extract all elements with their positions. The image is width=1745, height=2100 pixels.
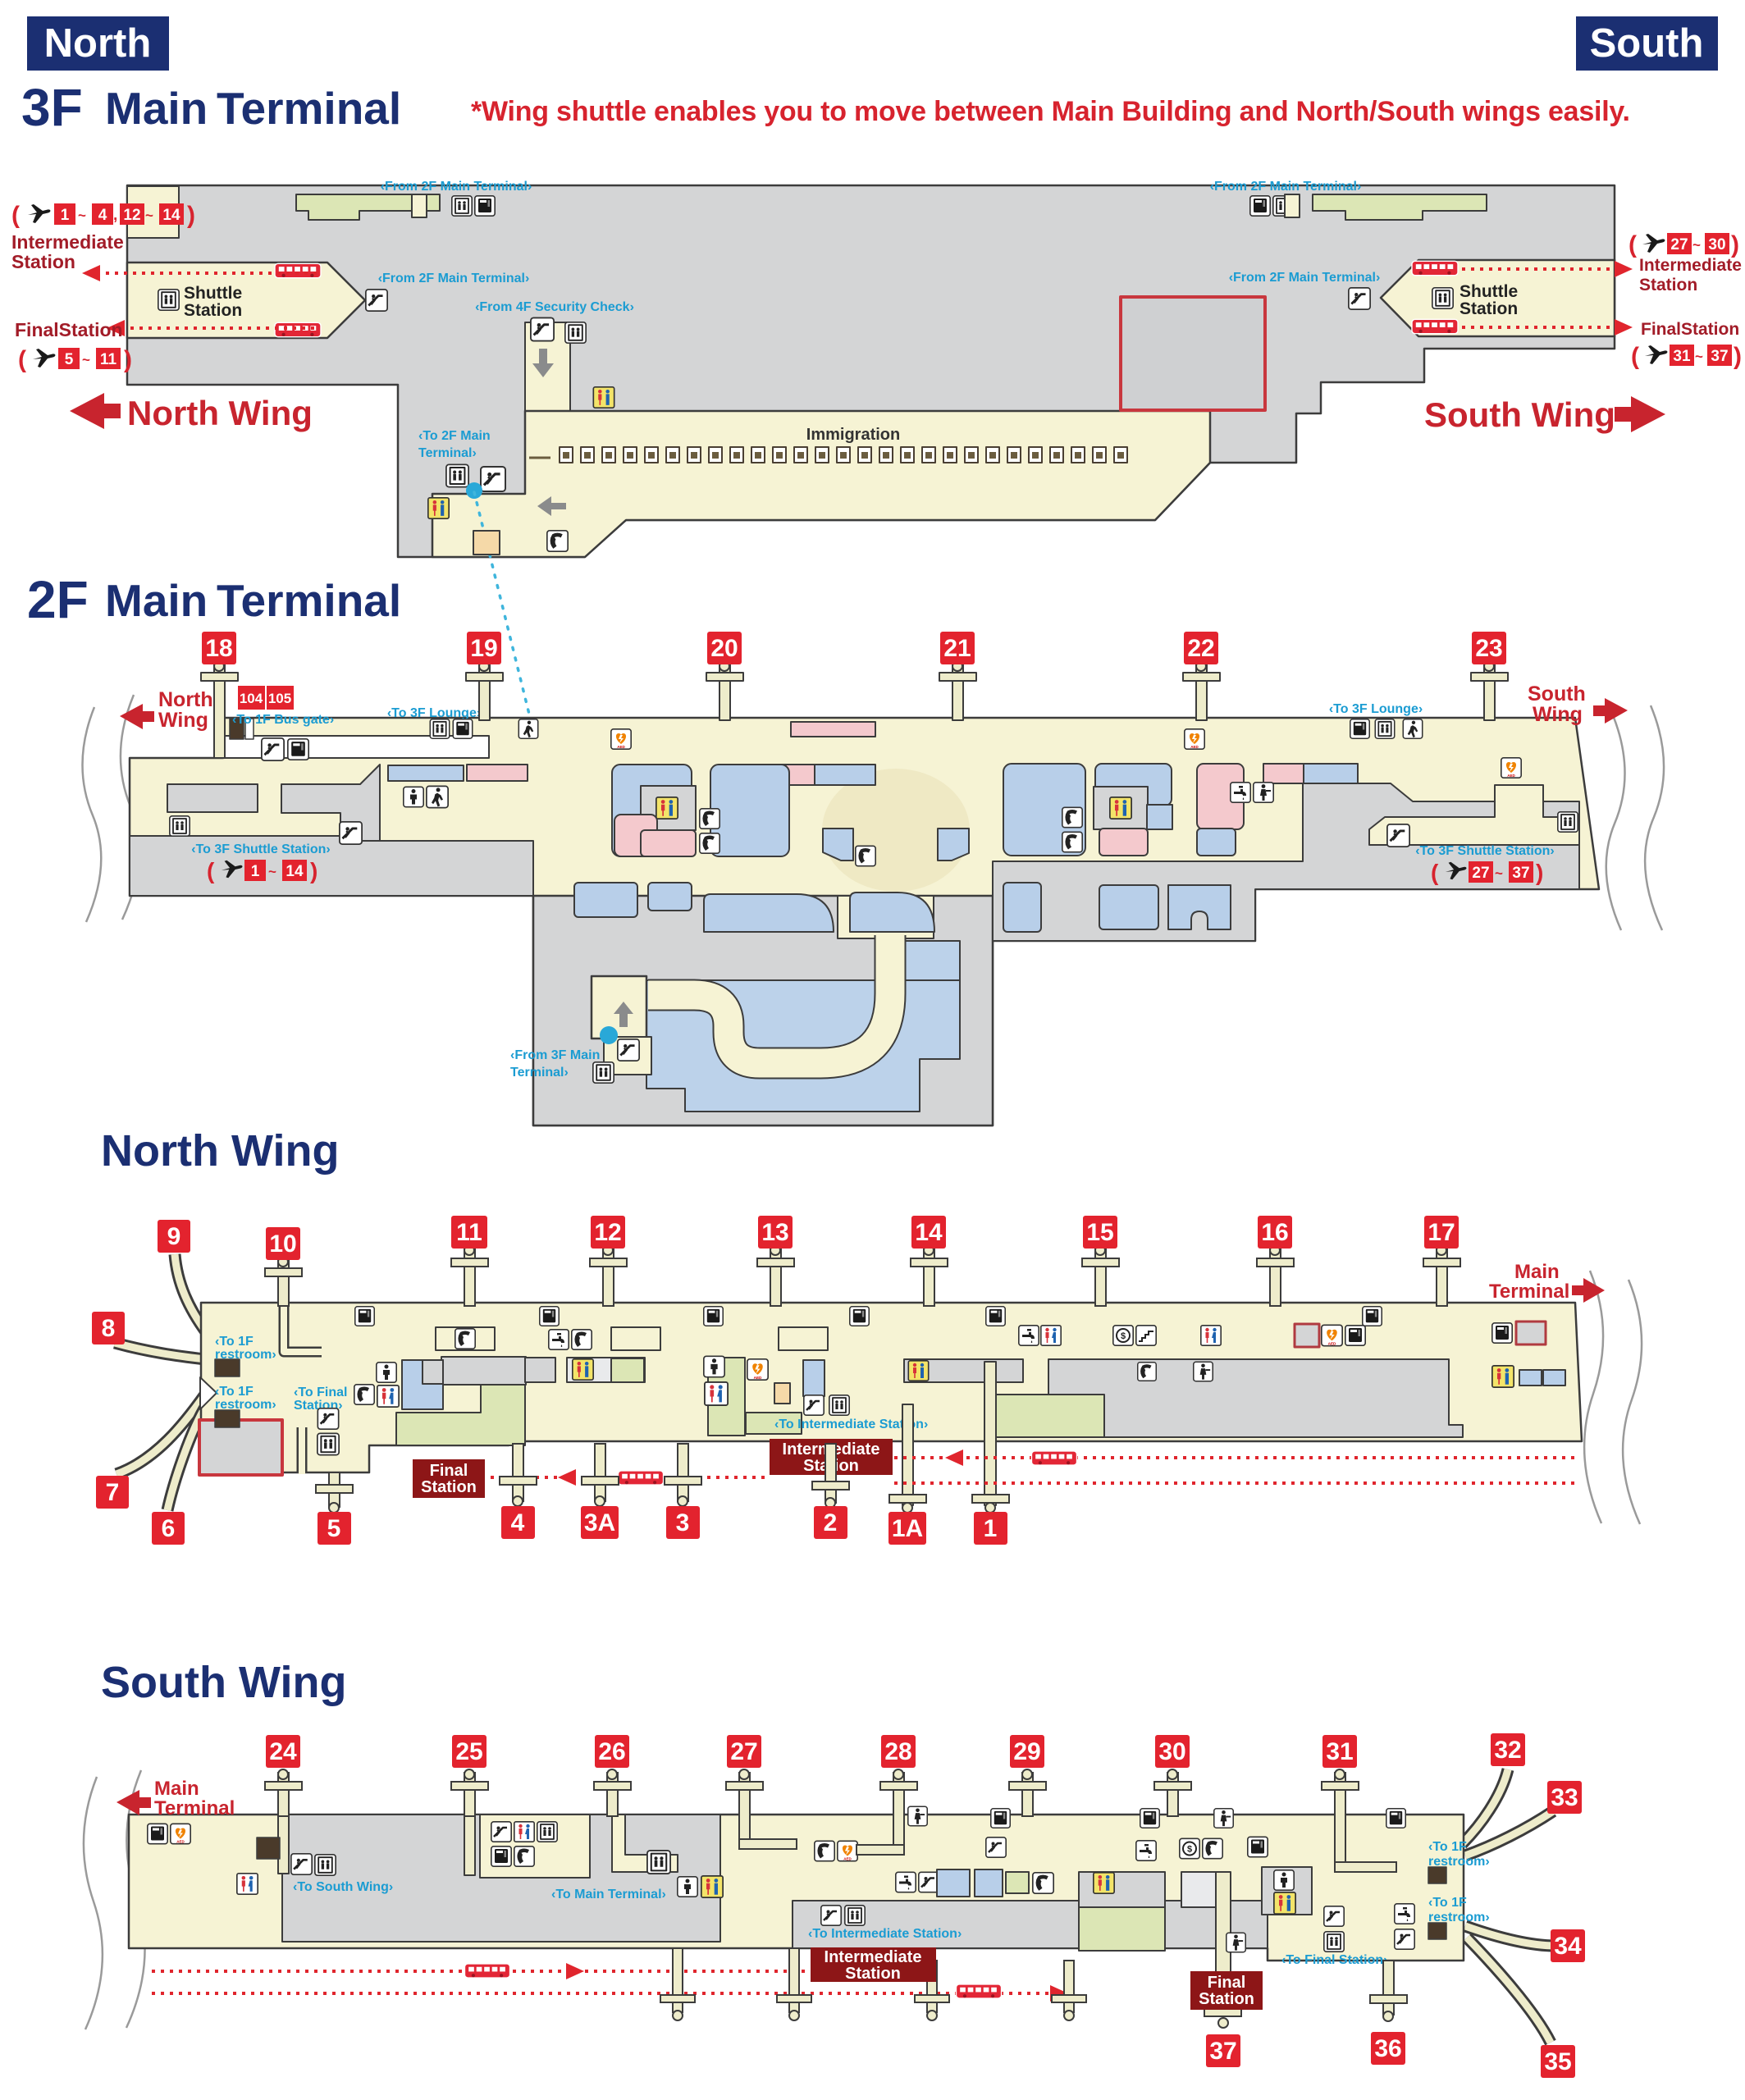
svg-text:North Wing: North Wing (101, 1126, 339, 1176)
svg-text:10: 10 (269, 1230, 296, 1258)
svg-text:105: 105 (268, 691, 291, 706)
svg-text:Final: Final (1208, 1974, 1246, 1992)
svg-text:~: ~ (1495, 865, 1503, 881)
svg-text:17: 17 (1428, 1219, 1455, 1246)
svg-text:(: ( (11, 202, 20, 229)
svg-text:(: ( (207, 858, 215, 883)
svg-text:21: 21 (943, 635, 971, 662)
svg-text:‹To Final: ‹To Final (294, 1386, 347, 1399)
svg-text:3F: 3F (21, 78, 83, 137)
svg-text:‹To 3F Lounge›: ‹To 3F Lounge› (1329, 702, 1423, 716)
svg-text:5: 5 (65, 351, 74, 368)
svg-text:3A: 3A (584, 1509, 615, 1536)
svg-text:(: ( (1631, 343, 1639, 370)
svg-text:Station: Station (1199, 1990, 1254, 2008)
svg-text:31: 31 (1326, 1738, 1353, 1765)
svg-text:): ) (124, 346, 132, 373)
svg-text:37: 37 (1209, 2038, 1236, 2065)
svg-text:(: ( (18, 346, 26, 373)
svg-text:2F: 2F (27, 570, 89, 629)
svg-text:): ) (1731, 231, 1739, 258)
svg-text:Station: Station (11, 251, 75, 272)
svg-text:Station: Station (1639, 276, 1697, 294)
svg-text:Shuttle: Shuttle (1459, 282, 1518, 301)
svg-text:25: 25 (455, 1738, 482, 1765)
svg-text:Terminal›: Terminal› (418, 446, 477, 460)
svg-text:32: 32 (1494, 1737, 1521, 1764)
svg-text:North: North (44, 21, 152, 66)
svg-text:9: 9 (167, 1223, 181, 1250)
svg-text:‹To 1F: ‹To 1F (1428, 1840, 1467, 1854)
svg-text:‹To Main Terminal›: ‹To Main Terminal› (551, 1888, 666, 1901)
svg-text:‹From 2F Main Terminal›: ‹From 2F Main Terminal› (1229, 271, 1381, 285)
svg-text:‹From 2F Main Terminal›: ‹From 2F Main Terminal› (378, 272, 530, 285)
svg-text:23: 23 (1475, 635, 1502, 662)
svg-text:34: 34 (1554, 1933, 1582, 1960)
svg-text:‹To Final Station›: ‹To Final Station› (1281, 1953, 1387, 1967)
svg-text:14: 14 (162, 207, 180, 224)
svg-text:‹To 1F: ‹To 1F (215, 1385, 254, 1399)
svg-text:27: 27 (730, 1738, 757, 1765)
svg-text:Station: Station (845, 1965, 901, 1983)
svg-text:(: ( (1431, 860, 1439, 885)
svg-text:): ) (310, 858, 317, 883)
svg-text:Terminal›: Terminal› (510, 1066, 569, 1080)
svg-text:Main: Main (105, 575, 208, 626)
svg-text:restroom›: restroom› (1428, 1911, 1490, 1924)
svg-text:37: 37 (1512, 865, 1529, 882)
svg-text:104: 104 (240, 691, 263, 706)
svg-text:14: 14 (915, 1219, 943, 1246)
svg-text:6: 6 (162, 1515, 176, 1542)
svg-text:30: 30 (1708, 236, 1725, 253)
svg-text:12: 12 (123, 207, 140, 224)
svg-text:13: 13 (761, 1219, 788, 1246)
svg-text:‹To 1F: ‹To 1F (1428, 1896, 1467, 1910)
svg-text:South Wing: South Wing (101, 1658, 346, 1707)
svg-text:~: ~ (145, 208, 153, 223)
svg-text:8: 8 (102, 1315, 116, 1342)
svg-text:Station: Station (1459, 299, 1518, 318)
svg-text:Terminal: Terminal (1489, 1281, 1569, 1303)
svg-text:Main: Main (154, 1778, 199, 1800)
svg-text:5: 5 (327, 1515, 341, 1542)
svg-text:South Wing: South Wing (1424, 395, 1615, 434)
svg-text:Terminal: Terminal (154, 1797, 235, 1819)
svg-text:1: 1 (984, 1515, 998, 1542)
svg-text:16: 16 (1261, 1219, 1288, 1246)
svg-text:Main: Main (1514, 1261, 1560, 1283)
svg-text:‹To 3F Shuttle Station›: ‹To 3F Shuttle Station› (191, 842, 330, 856)
svg-text:‹From 2F Main Terminal›: ‹From 2F Main Terminal› (1210, 180, 1362, 194)
svg-text:24: 24 (269, 1738, 297, 1765)
svg-text:Terminal: Terminal (217, 575, 401, 626)
svg-text:~: ~ (78, 208, 86, 223)
svg-text:~: ~ (1692, 237, 1701, 253)
svg-text:): ) (1536, 860, 1543, 885)
svg-text:14: 14 (286, 863, 304, 880)
svg-text:35: 35 (1544, 2048, 1571, 2075)
svg-text:11: 11 (100, 351, 117, 368)
svg-text:FinalStation: FinalStation (15, 319, 123, 340)
svg-text:,: , (113, 207, 117, 224)
svg-text:12: 12 (594, 1219, 621, 1246)
svg-text:South: South (1528, 682, 1586, 705)
svg-text:‹From 2F Main Terminal›: ‹From 2F Main Terminal› (381, 180, 532, 194)
svg-text:‹From 4F Security Check›: ‹From 4F Security Check› (475, 300, 634, 314)
svg-text:22: 22 (1187, 635, 1214, 662)
svg-text:37: 37 (1711, 348, 1728, 365)
svg-text:11: 11 (456, 1219, 482, 1246)
svg-text:26: 26 (598, 1738, 625, 1765)
svg-text:20: 20 (710, 635, 738, 662)
svg-text:‹To South Wing›: ‹To South Wing› (293, 1880, 393, 1894)
svg-text:Station: Station (421, 1478, 477, 1496)
svg-text:‹To Intermediate Station›: ‹To Intermediate Station› (808, 1927, 962, 1941)
svg-text:‹From 3F Main: ‹From 3F Main (510, 1048, 600, 1062)
svg-text:‹To 3F Shuttle Station›: ‹To 3F Shuttle Station› (1415, 844, 1554, 858)
svg-text:FinalStation: FinalStation (1641, 320, 1739, 339)
svg-text:3: 3 (676, 1509, 690, 1536)
svg-text:*Wing shuttle enables you to m: *Wing shuttle enables you to move betwee… (471, 96, 1630, 127)
svg-text:~: ~ (1695, 349, 1703, 364)
svg-text:36: 36 (1374, 2035, 1401, 2062)
svg-text:‹To 3F Lounge›: ‹To 3F Lounge› (387, 706, 481, 720)
svg-text:Main: Main (105, 83, 208, 134)
svg-text:33: 33 (1551, 1784, 1578, 1811)
svg-text:27: 27 (1472, 865, 1489, 882)
svg-text:2: 2 (824, 1509, 838, 1536)
svg-text:(: ( (1629, 231, 1637, 258)
svg-text:Intermediate: Intermediate (11, 231, 124, 253)
svg-text:7: 7 (106, 1479, 120, 1506)
svg-text:Station: Station (184, 301, 242, 320)
svg-text:Immigration: Immigration (806, 426, 900, 444)
svg-text:‹To 1F: ‹To 1F (215, 1335, 254, 1349)
svg-text:Wing: Wing (158, 709, 208, 732)
svg-text:Wing: Wing (1533, 703, 1583, 726)
svg-text:1: 1 (251, 863, 260, 880)
svg-text:30: 30 (1158, 1738, 1185, 1765)
svg-text:28: 28 (884, 1738, 911, 1765)
svg-text:): ) (1734, 343, 1742, 370)
svg-text:Terminal: Terminal (217, 83, 401, 134)
svg-text:1A: 1A (892, 1515, 923, 1542)
svg-text:Intermediate: Intermediate (1639, 256, 1742, 275)
svg-text:South: South (1590, 21, 1704, 66)
svg-text:restroom›: restroom› (1428, 1855, 1490, 1869)
svg-text:Shuttle: Shuttle (184, 284, 242, 303)
svg-text:~: ~ (82, 352, 90, 367)
svg-text:): ) (187, 202, 195, 229)
svg-text:~: ~ (268, 864, 276, 879)
svg-text:15: 15 (1086, 1219, 1113, 1246)
svg-text:4: 4 (511, 1509, 525, 1536)
svg-text:19: 19 (470, 635, 497, 662)
svg-text:Intermediate: Intermediate (825, 1948, 922, 1966)
svg-text:North Wing: North Wing (127, 394, 313, 432)
svg-text:North: North (158, 688, 213, 711)
svg-text:restroom›: restroom› (215, 1398, 276, 1412)
svg-text:18: 18 (205, 635, 232, 662)
svg-text:4: 4 (98, 207, 107, 224)
svg-text:‹To 1F Bus gate›: ‹To 1F Bus gate› (232, 713, 334, 727)
svg-text:‹To 2F Main: ‹To 2F Main (418, 429, 491, 443)
svg-text:Final: Final (430, 1462, 468, 1480)
svg-text:29: 29 (1013, 1738, 1040, 1765)
svg-text:31: 31 (1673, 348, 1691, 365)
svg-text:restroom›: restroom› (215, 1348, 276, 1362)
svg-text:27: 27 (1670, 236, 1688, 253)
svg-text:1: 1 (61, 207, 70, 224)
